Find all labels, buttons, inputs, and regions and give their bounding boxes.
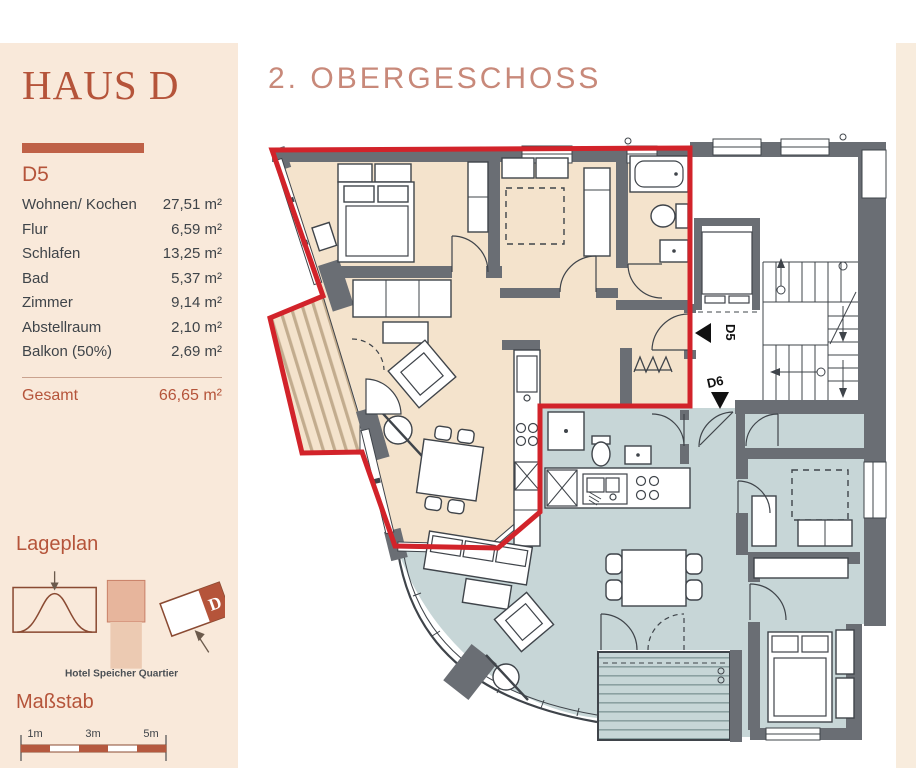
siteplan-building-hall (13, 571, 96, 632)
room-label: Abstellraum (22, 316, 101, 341)
room-label: Bad (22, 267, 49, 292)
table-row: Balkon (50%) 2,69 m² (22, 340, 222, 365)
table-row: Abstellraum 2,10 m² (22, 316, 222, 341)
room-area: 13,25 m² (163, 242, 222, 267)
terrace-d6 (598, 652, 730, 740)
total-label: Gesamt (22, 387, 78, 405)
table-row: Wohnen/ Kochen 27,51 m² (22, 193, 222, 218)
room-area: 6,59 m² (171, 218, 222, 243)
table-row: Bad 5,37 m² (22, 267, 222, 292)
table-row: Schlafen 13,25 m² (22, 242, 222, 267)
unit-marker-d5: D5 (695, 323, 738, 343)
scale-tick-3m: 3m (85, 728, 100, 740)
room-label: Schlafen (22, 242, 80, 267)
floor-title: 2. OBERGESCHOSS (268, 62, 601, 96)
plan-d5-label: D5 (723, 324, 738, 341)
scale-tick-1m: 1m (27, 728, 42, 740)
divider-bar (22, 143, 144, 153)
window (864, 462, 886, 518)
room-label: Flur (22, 218, 48, 243)
room-area: 2,69 m² (171, 340, 222, 365)
lageplan-heading: Lageplan (16, 533, 98, 556)
total-area: 66,65 m² (159, 387, 222, 405)
down-arrow-icon (711, 392, 729, 409)
page-margin-strip (896, 43, 916, 768)
total-divider (22, 377, 222, 378)
room-label: Zimmer (22, 291, 73, 316)
table-row: Flur 6,59 m² (22, 218, 222, 243)
plan-d6-label: D6 (706, 373, 725, 391)
window (713, 139, 761, 155)
window (766, 728, 820, 740)
unit-label: D5 (22, 163, 49, 187)
table-row: Zimmer 9,14 m² (22, 291, 222, 316)
room-area: 5,37 m² (171, 267, 222, 292)
room-area: 2,10 m² (171, 316, 222, 341)
left-arrow-icon (695, 323, 711, 343)
scale-tick-5m: 5m (143, 728, 158, 740)
down-arrow-icon (51, 582, 59, 590)
siteplan-building-d: D (160, 582, 225, 636)
page-title: HAUS D (22, 61, 180, 109)
siteplan-pointer-arrow (195, 630, 209, 652)
siteplan-building-hotel (107, 580, 145, 668)
sidebar: HAUS D D5 Wohnen/ Kochen 27,51 m² Flur 6… (0, 43, 238, 768)
scale-bar: 1m 3m 5m (18, 721, 178, 763)
room-label: Balkon (50%) (22, 340, 112, 365)
site-plan: D Hotel Speicher Quartier (10, 565, 225, 680)
room-label: Wohnen/ Kochen (22, 193, 137, 218)
stairs (763, 258, 858, 400)
window (781, 139, 829, 155)
room-area: 9,14 m² (171, 291, 222, 316)
room-area: 27,51 m² (163, 193, 222, 218)
room-area-table: Wohnen/ Kochen 27,51 m² Flur 6,59 m² Sch… (22, 193, 222, 365)
siteplan-caption: Hotel Speicher Quartier (65, 669, 178, 680)
massstab-heading: Maßstab (16, 691, 94, 714)
unit-marker-d6: D6 (706, 373, 729, 409)
elevator (694, 218, 760, 312)
kitchen-d6 (545, 468, 690, 508)
total-row: Gesamt 66,65 m² (22, 387, 222, 405)
